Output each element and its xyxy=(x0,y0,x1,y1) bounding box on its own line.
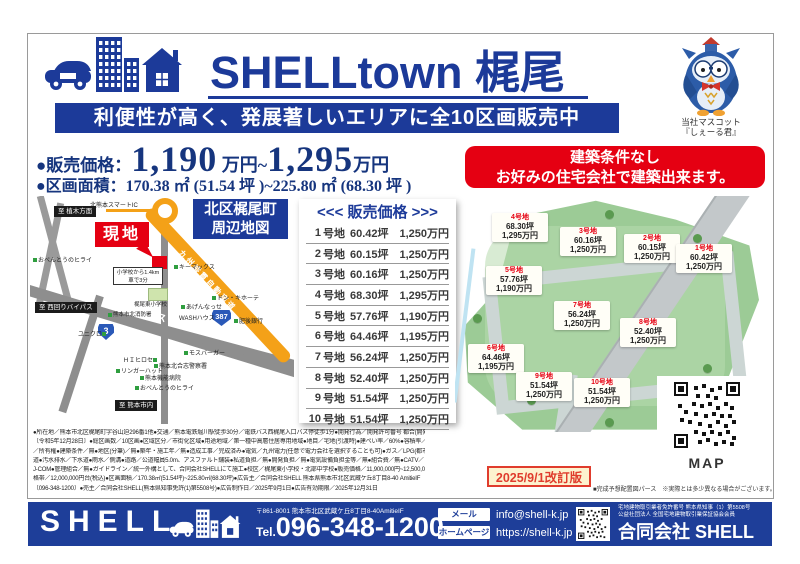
tagline-banner: 利便性が高く、発展著しいエリアに全10区画販売中 xyxy=(55,103,619,133)
phone-prefix: Tel. xyxy=(256,525,276,539)
smart-ic-label: 北熊本スマートIC xyxy=(90,200,138,209)
poi-mos-burger: モスバーガー xyxy=(184,348,225,357)
access-map: 北熊本スマートIC 九州縦貫自動車道 北バイパス 3 387 至 植木方面 至 … xyxy=(30,196,294,425)
mail-chip: メール xyxy=(438,508,490,521)
poi-wash-house: WASHハウス xyxy=(179,313,215,322)
revision-badge: 2025/9/1改訂版 xyxy=(487,466,591,487)
table-row: 2号地60.15坪1,250万円 xyxy=(306,244,449,265)
poi-marker-icon xyxy=(181,305,185,309)
school-distance-line2: 車で3分 xyxy=(114,277,162,285)
qr-code-icon xyxy=(578,509,608,539)
lot-area-label: ●区画面積： xyxy=(36,178,126,195)
fine-print-line: 〔096-348-1200〕●売主／合同会社SHELL(熊本県知事免許(1)第5… xyxy=(33,485,425,494)
poi-police: 熊本北合志警察署 xyxy=(154,361,207,370)
tree-icon xyxy=(605,210,614,219)
price-table: <<< 販売価格 >>> 1号地60.42坪1,250万円 2号地60.15坪1… xyxy=(299,199,456,423)
tree-icon xyxy=(703,364,712,373)
school-distance-line1: 小学校から1.4km xyxy=(114,269,162,277)
lot-card-3: 3号地60.16坪1,250万円 xyxy=(560,227,616,256)
fine-print-line: ●所在地／熊本市北区梶尾町字谷山迫296番1他●交通／熊本電鉄堀川駅徒歩30分／… xyxy=(33,429,425,438)
poi-donki: ドン・キホーテ xyxy=(212,293,259,302)
poi-hospital: 熊本機能病院 xyxy=(140,373,181,382)
map-title: 北区梶尾町 周辺地図 xyxy=(193,199,288,239)
fine-print-line: 〔令和5年12月28日〕●総区画数／10区画●区域区分／市街化区域●用途地域／第… xyxy=(33,438,425,447)
mascot-caption-line1: 当社マスコット xyxy=(658,117,764,127)
fine-print-line: ／所有権●建築条件／無●地区(分筆)／無●築年・施工年／無●造成工事／完成済み●… xyxy=(33,448,425,457)
flyer-page: SHELLtown 梶尾 利便性が高く、発展著しいエリアに全10区画販売中 当社… xyxy=(0,0,800,564)
footer-phone: Tel.096-348-1200 xyxy=(256,512,444,543)
school-distance-box: 小学校から1.4km 車で3分 xyxy=(113,267,163,285)
site-flag: 現地 xyxy=(95,222,149,247)
phone-number: 096-348-1200 xyxy=(276,512,444,542)
map-qr-label: MAP xyxy=(657,455,757,471)
poi-uniqlo: ユニクロ xyxy=(78,329,107,338)
footer-brand: SHELL xyxy=(40,505,178,539)
map-title-line2: 周辺地図 xyxy=(193,220,288,239)
lot-area-line: ●区画面積：170.38 ㎡ (51.54 坪 )~225.80 ㎡ (68.3… xyxy=(36,172,411,196)
tree-icon xyxy=(693,234,702,243)
lot-card-10: 10号地51.54坪1,250万円 xyxy=(574,378,630,407)
lot-card-9: 9号地51.54坪1,250万円 xyxy=(516,372,572,401)
poi-fire-station: 熊本市北消防署 xyxy=(108,310,152,318)
table-row: 9号地51.54坪1,250万円 xyxy=(306,389,449,410)
lot-card-6: 6号地64.46坪1,195万円 xyxy=(468,344,524,373)
tree-icon xyxy=(473,314,482,323)
homepage-chip: ホームページ xyxy=(438,526,490,539)
mascot-caption-line2: 『しぇーる君』 xyxy=(658,127,764,137)
poi-marker-icon xyxy=(174,265,178,269)
footer-logo-icon xyxy=(166,508,252,541)
table-row: 3号地60.16坪1,250万円 xyxy=(306,264,449,285)
mascot-caption: 当社マスコット 『しぇーる君』 xyxy=(658,117,764,137)
poi-hi-hirose: ＨＩヒロセ xyxy=(123,355,158,364)
footer-bar: SHELL xyxy=(28,502,772,546)
condition-banner: 建築条件なし お好みの住宅会社で建築出来ます。 xyxy=(465,146,765,188)
poi-marker-icon xyxy=(184,351,188,355)
lot-card-4: 4号地68.30坪1,295万円 xyxy=(492,213,548,242)
license-text: 宅地建物取引業者免許番号 熊本県知事（1）第5508号 公益社団法人 全国宅地建… xyxy=(618,505,750,518)
poi-marker-icon xyxy=(154,364,158,368)
ic-connector xyxy=(106,209,154,212)
poi-marker-icon xyxy=(140,376,144,380)
lot-card-2: 2号地60.15坪1,250万円 xyxy=(624,234,680,263)
map-qr-panel: MAP xyxy=(657,376,757,482)
poi-kmax: キーマックス xyxy=(174,262,215,271)
condition-line2: お好みの住宅会社で建築出来ます。 xyxy=(465,168,765,188)
poi-marker-icon xyxy=(116,369,120,373)
lot-card-8: 8号地52.40坪1,250万円 xyxy=(620,318,676,347)
table-row: 8号地52.40坪1,250万円 xyxy=(306,368,449,389)
homepage-url[interactable]: https://shell-k.jp xyxy=(496,527,572,539)
poi-marker-icon xyxy=(212,296,216,300)
tree-icon xyxy=(605,418,614,427)
school-label: 梶尾東小学校 xyxy=(134,300,167,308)
qr-code-icon xyxy=(674,382,740,448)
direction-kumamoto: 至 熊本市内 xyxy=(115,400,157,411)
smart-ic-icon xyxy=(152,198,178,224)
poi-marker-icon xyxy=(33,258,37,262)
page-title: SHELLtown 梶尾 xyxy=(210,36,565,101)
fine-print-line: 道●汚水排水／下水道●雨水／側溝●道路／公道幅員5.0m、アスファルト舗装●私道… xyxy=(33,457,425,466)
mail-address[interactable]: info@shell-k.jp xyxy=(496,509,568,521)
table-row: 5号地57.76坪1,190万円 xyxy=(306,306,449,327)
lot-card-7: 7号地56.24坪1,250万円 xyxy=(554,301,610,330)
lot-area-value: 170.38 ㎡ (51.54 坪 )~225.80 ㎡ (68.30 坪 ) xyxy=(126,178,412,195)
plan-note: ■完成予想配置図パース ※実際とは多少異なる場合がございます。 xyxy=(593,484,775,493)
map-title-line1: 北区梶尾町 xyxy=(193,201,288,220)
direction-ueki: 至 植木方面 xyxy=(54,206,96,217)
footer-qr-panel xyxy=(576,507,610,541)
poi-hirai-2: おべんとうのヒライ xyxy=(135,383,194,392)
lot-card-1: 1号地60.42坪1,250万円 xyxy=(676,244,732,273)
poi-marker-icon xyxy=(234,319,238,323)
lot-card-5: 5号地57.76坪1,190万円 xyxy=(486,266,542,295)
table-row: 1号地60.42坪1,250万円 xyxy=(306,223,449,244)
poi-hirai-1: おべんとうのヒライ xyxy=(33,255,92,264)
table-row: 4号地68.30坪1,295万円 xyxy=(306,285,449,306)
legal-fine-print: ●所在地／熊本市北区梶尾町字谷山迫296番1他●交通／熊本電鉄堀川駅徒歩30分／… xyxy=(33,429,425,494)
license-line1: 宅地建物取引業者免許番号 熊本県知事（1）第5508号 xyxy=(618,505,750,512)
poi-marker-icon xyxy=(108,313,112,317)
title-underline xyxy=(208,96,588,99)
condition-line1: 建築条件なし xyxy=(465,148,765,168)
owl-mascot-icon xyxy=(668,36,754,116)
table-row: 10号地51.54坪1,250万円 xyxy=(306,409,449,430)
price-table-title: <<< 販売価格 >>> xyxy=(306,202,449,223)
table-row: 6号地64.46坪1,195万円 xyxy=(306,326,449,347)
fine-print-line: J-COM●管理組合／無●ガイドライン／統一外構として、合同会社SHELLにて施… xyxy=(33,466,425,475)
poi-higo-bank: 肥後銀行 xyxy=(234,316,263,325)
poi-marker-icon xyxy=(135,386,139,390)
company-name: 合同会社 SHELL xyxy=(618,518,754,544)
shell-logo-icon xyxy=(42,34,200,98)
direction-nishimawari: 至 西回りバイパス xyxy=(35,302,97,313)
fine-print-line: 格帯／12,000,000円台(税込)●区画面積／170.38㎡(51.54坪)… xyxy=(33,475,425,484)
poi-marker-icon xyxy=(102,332,106,336)
poi-agennasse: あげんなっせ xyxy=(181,302,222,311)
table-row: 7号地56.24坪1,250万円 xyxy=(306,347,449,368)
